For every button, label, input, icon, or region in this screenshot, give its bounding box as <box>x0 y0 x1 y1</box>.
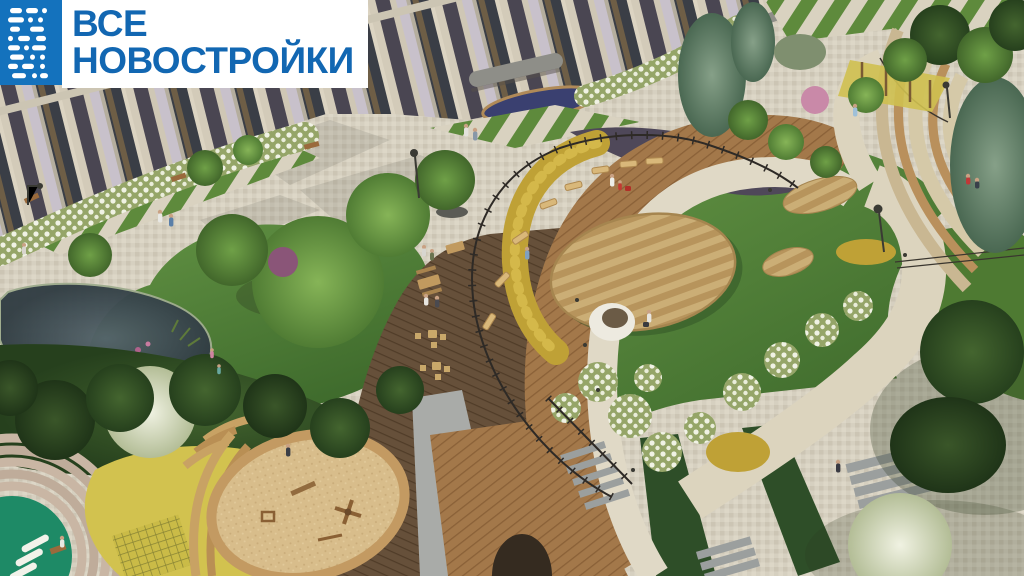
stroller <box>625 186 631 191</box>
logo-line1: ВСЕ <box>72 6 354 43</box>
logo-mark-icon <box>0 0 62 85</box>
logo-text: ВСЕ НОВОСТРОЙКИ <box>62 0 368 88</box>
vse-novostroyki-watermark: ВСЕ НОВОСТРОЙКИ <box>0 0 368 88</box>
logo-line2: НОВОСТРОЙКИ <box>72 43 354 80</box>
courtyard-render: ВСЕ НОВОСТРОЙКИ <box>0 0 1024 576</box>
